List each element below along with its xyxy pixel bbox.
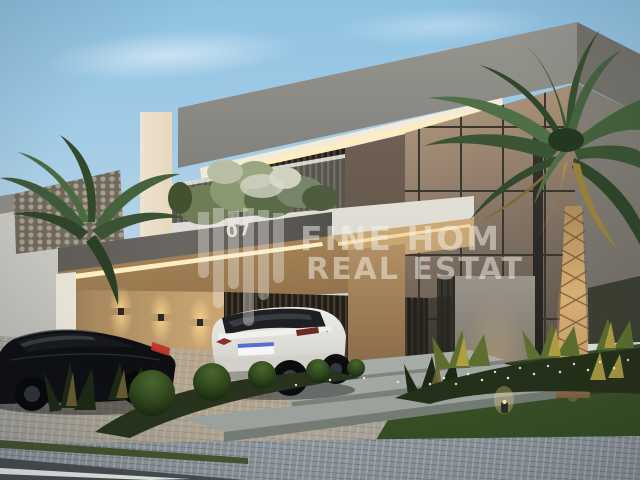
logo-bar	[258, 210, 269, 300]
logo-bar	[243, 208, 254, 326]
logo-bar	[213, 208, 224, 308]
watermark: FINE HOM REAL ESTAT	[0, 0, 640, 480]
logo-bar	[228, 211, 239, 289]
real-estate-photo: 07	[0, 0, 640, 480]
watermark-line2: REAL ESTAT	[306, 252, 524, 287]
logo-bar	[198, 212, 209, 278]
watermark-logo	[198, 208, 298, 338]
logo-bar	[273, 213, 284, 283]
